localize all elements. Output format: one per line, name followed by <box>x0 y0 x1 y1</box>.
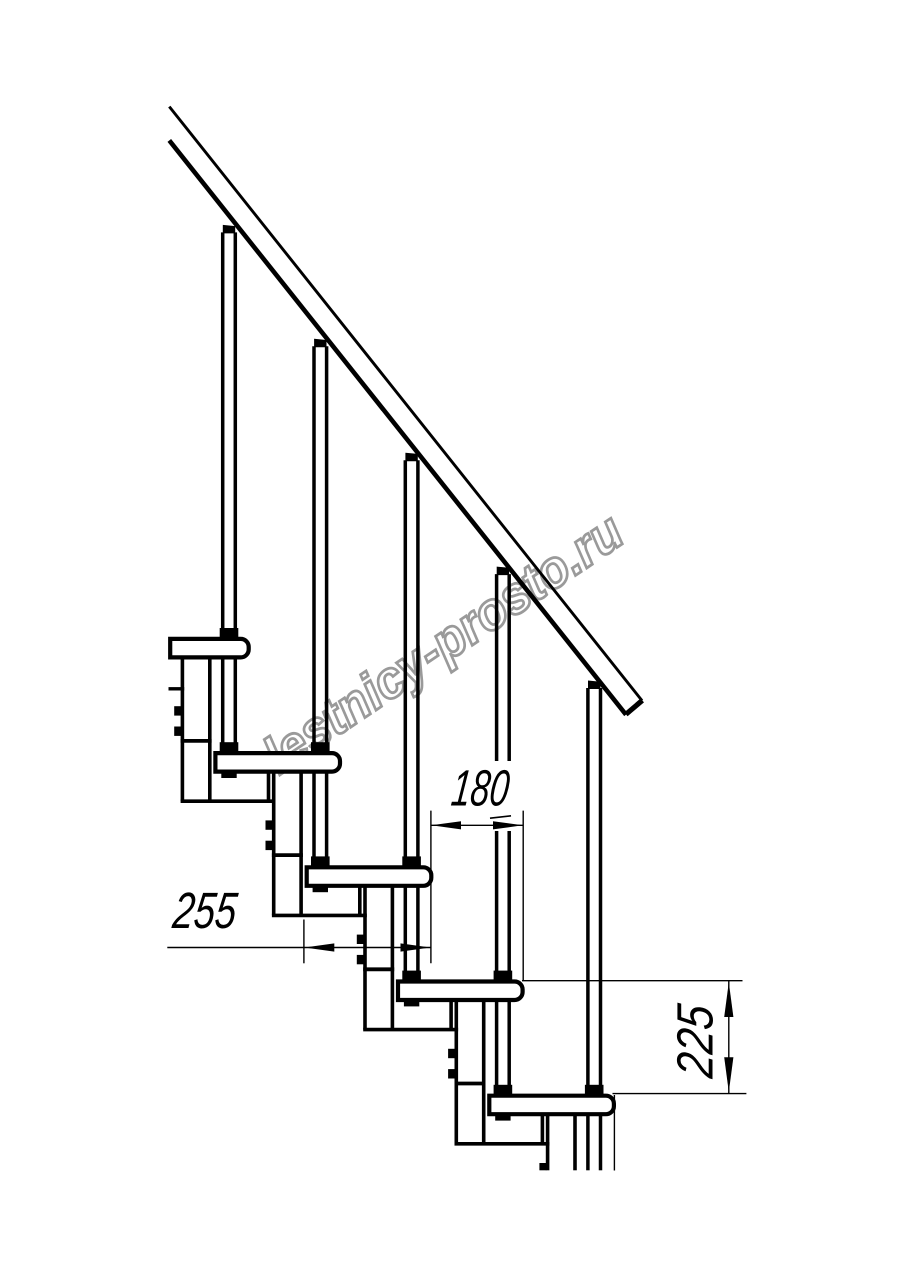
svg-text:180: 180 <box>449 760 513 817</box>
svg-text:225: 225 <box>667 1001 724 1081</box>
svg-text:255: 255 <box>169 882 240 939</box>
